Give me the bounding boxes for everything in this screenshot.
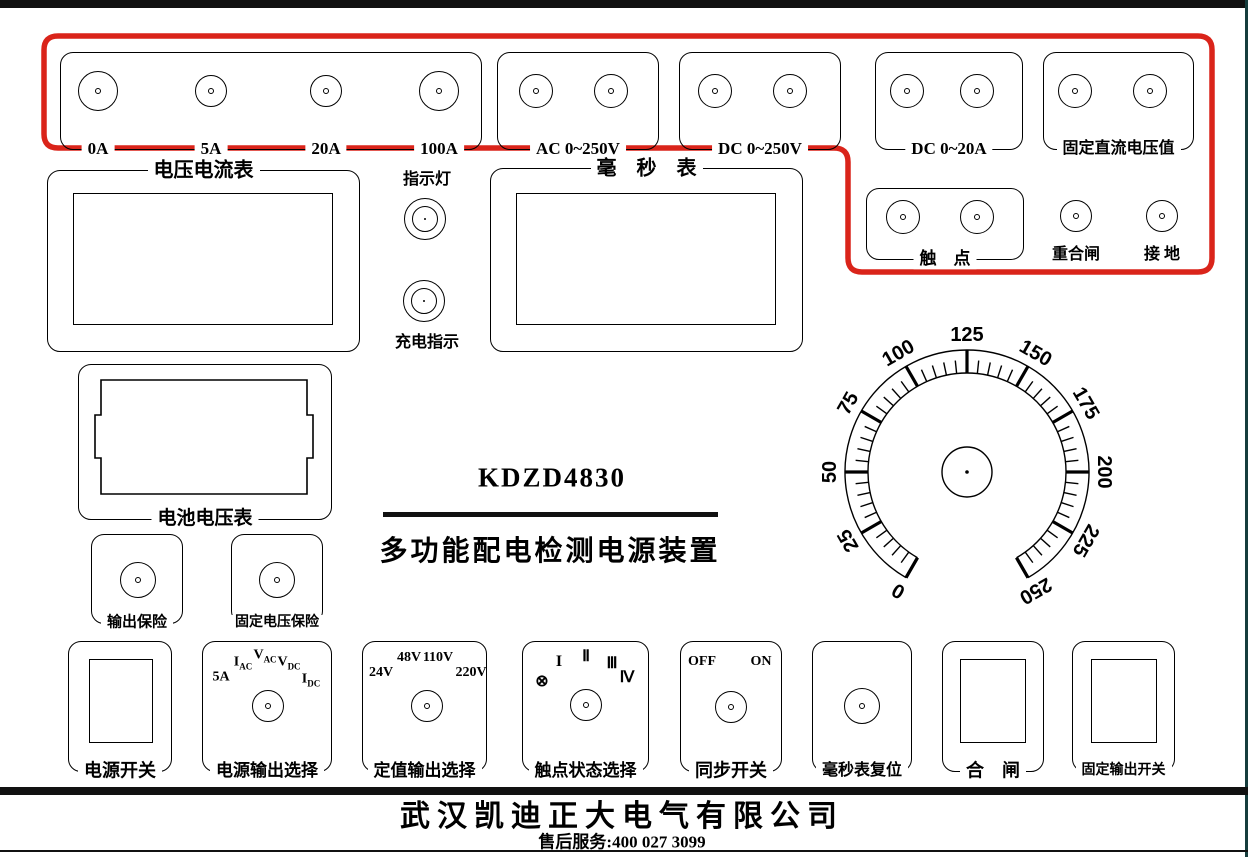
- output-fuse-label: 输出保险: [101, 614, 173, 631]
- jack-dcv-pos[interactable]: [698, 74, 732, 108]
- close-switch-label: 合 闸: [960, 761, 1026, 782]
- reclose-label: 重合闸: [1052, 240, 1100, 264]
- jack-0a[interactable]: [78, 71, 118, 111]
- jack-ac-neg[interactable]: [594, 74, 628, 108]
- setpoint-select-label: 定值输出选择: [368, 761, 482, 781]
- knob-position-5a: 5A: [212, 670, 229, 687]
- jack-contact-1[interactable]: [886, 200, 920, 234]
- sync-switch-knob[interactable]: [715, 691, 747, 723]
- charge-indicator-lamp: [403, 280, 445, 322]
- knob-position-ii: Ⅱ: [582, 646, 590, 666]
- charge-indicator-label: 充电指示: [395, 328, 459, 352]
- sync-switch-label: 同步开关: [689, 761, 773, 782]
- setpoint-select-knob[interactable]: [411, 690, 443, 722]
- contact-state-select-box: ⊗ I Ⅱ Ⅲ Ⅳ 触点状态选择: [522, 641, 649, 772]
- ms-reset-button[interactable]: [844, 688, 880, 724]
- power-switch-label: 电源开关: [78, 761, 162, 782]
- jack-contact-2[interactable]: [960, 200, 994, 234]
- dial-scale-label: 175: [1068, 384, 1104, 424]
- ms-reset-box: 毫秒表复位: [812, 641, 912, 772]
- jack-100a[interactable]: [419, 71, 459, 111]
- knob-position-off: OFF: [688, 654, 716, 670]
- contact-label: 触 点: [914, 249, 977, 269]
- dial-scale-label: 200: [1093, 455, 1115, 488]
- knob-position-iac: IAC: [234, 655, 252, 672]
- dc-current-label: DC 0~20A: [905, 139, 992, 159]
- millisecond-label: 毫 秒 表: [591, 158, 703, 181]
- jack-dcv-neg[interactable]: [773, 74, 807, 108]
- dc-voltage-label: DC 0~250V: [712, 139, 808, 159]
- jack-label-0a: 0A: [82, 139, 115, 159]
- fixed-output-switch-label: 固定输出开关: [1076, 763, 1172, 779]
- battery-display-outline: [93, 378, 317, 498]
- device-title: 多功能配电检测电源装置: [379, 529, 720, 569]
- setpoint-select-box: 24V 48V 110V 220V 定值输出选择: [362, 641, 487, 772]
- knob-position-iv: Ⅳ: [620, 667, 635, 687]
- knob-position-idc: IDC: [302, 672, 320, 689]
- fixed-voltage-fuse-label: 固定电压保险: [229, 615, 325, 631]
- current-terminal-group: 0A 5A 20A 100A: [60, 52, 482, 150]
- output-select-label: 电源输出选择: [210, 761, 324, 781]
- millisecond-display: [516, 193, 776, 325]
- close-switch-box: 合 闸: [942, 641, 1044, 772]
- jack-20a[interactable]: [310, 75, 342, 107]
- fixed-dc-label: 固定直流电压值: [1056, 140, 1180, 158]
- indicator-lamp-label: 指示灯: [403, 165, 451, 189]
- dial-scale-label: 225: [1068, 521, 1104, 561]
- dial-scale-label: 150: [1016, 335, 1056, 371]
- volt-ammeter-display: [73, 193, 333, 325]
- close-switch-rocker[interactable]: [960, 659, 1026, 743]
- ground-label: 接 地: [1144, 240, 1180, 264]
- jack-label-20a: 20A: [305, 139, 346, 159]
- volt-ammeter-label: 电压电流表: [148, 160, 260, 183]
- sync-switch-box: OFF ON 同步开关: [680, 641, 782, 772]
- knob-position-iii: Ⅲ: [606, 653, 617, 673]
- knob-position-off-sym: ⊗: [535, 671, 548, 691]
- contact-terminal-group: 触 点: [866, 188, 1024, 260]
- jack-label-5a: 5A: [195, 139, 228, 159]
- ac-voltage-terminal-group: AC 0~250V: [497, 52, 659, 150]
- jack-ac-pos[interactable]: [519, 74, 553, 108]
- contact-state-label: 触点状态选择: [529, 761, 643, 781]
- output-select-knob[interactable]: [252, 690, 284, 722]
- ac-voltage-label: AC 0~250V: [530, 139, 626, 159]
- dial-scale-label: 0: [888, 578, 909, 603]
- output-fuse-holder[interactable]: [120, 562, 156, 598]
- knob-position-110v: 110V: [423, 650, 453, 666]
- dc-voltage-terminal-group: DC 0~250V: [679, 52, 841, 150]
- fixed-dc-terminal-group: 固定直流电压值: [1043, 52, 1194, 150]
- output-voltage-dial: 0255075100125150175200225250: [790, 303, 1144, 643]
- title-divider: [383, 512, 718, 517]
- dial-scale-label: 250: [1016, 573, 1056, 609]
- output-select-box: 5A IAC VAC VDC IDC 电源输出选择: [202, 641, 332, 772]
- power-switch-rocker[interactable]: [89, 659, 153, 743]
- dial-scale-label: 50: [819, 461, 841, 483]
- jack-fixed-dc-pos[interactable]: [1058, 74, 1092, 108]
- dial-scale-label: 125: [950, 324, 983, 346]
- jack-label-100a: 100A: [414, 139, 464, 159]
- fixed-voltage-fuse-holder[interactable]: [259, 562, 295, 598]
- jack-ground[interactable]: [1146, 200, 1178, 232]
- dc-current-terminal-group: DC 0~20A: [875, 52, 1023, 150]
- battery-voltmeter-label: 电池电压表: [151, 508, 258, 530]
- knob-position-on: ON: [751, 654, 772, 670]
- fixed-voltage-fuse-holder-box: 固定电压保险: [231, 534, 323, 624]
- ms-reset-label: 毫秒表复位: [816, 762, 908, 780]
- dial-scale-label: 100: [879, 335, 919, 371]
- fixed-output-switch-box: 固定输出开关: [1072, 641, 1175, 772]
- knob-position-vdc: VDC: [277, 655, 300, 672]
- jack-reclose[interactable]: [1060, 200, 1092, 232]
- device-front-panel: 0A 5A 20A 100A AC 0~250V DC 0~250V DC 0~…: [0, 0, 1248, 857]
- knob-position-24v: 24V: [369, 665, 393, 681]
- volt-ammeter-meter: 电压电流表: [47, 170, 360, 352]
- contact-state-knob[interactable]: [570, 689, 602, 721]
- service-hotline: 售后服务:400 027 3099: [538, 828, 705, 853]
- model-number: KDZD4830: [478, 463, 626, 494]
- power-switch-box: 电源开关: [68, 641, 172, 772]
- knob-position-48v: 48V: [397, 650, 421, 666]
- knob-position-i: I: [556, 653, 562, 671]
- jack-dca-pos[interactable]: [890, 74, 924, 108]
- output-fuse-holder-box: 输出保险: [91, 534, 183, 624]
- jack-5a[interactable]: [195, 75, 227, 107]
- knob-position-220v: 220V: [455, 665, 486, 681]
- jack-dca-neg[interactable]: [960, 74, 994, 108]
- dial-knob-center: [965, 470, 969, 474]
- panel-bottom-edge: [0, 850, 1248, 852]
- millisecond-meter: 毫 秒 表: [490, 168, 803, 352]
- fixed-output-switch-rocker[interactable]: [1091, 659, 1157, 743]
- indicator-lamp: [404, 198, 446, 240]
- knob-position-vac: VAC: [253, 648, 276, 665]
- jack-fixed-dc-neg[interactable]: [1133, 74, 1167, 108]
- battery-voltmeter: 电池电压表: [78, 364, 332, 520]
